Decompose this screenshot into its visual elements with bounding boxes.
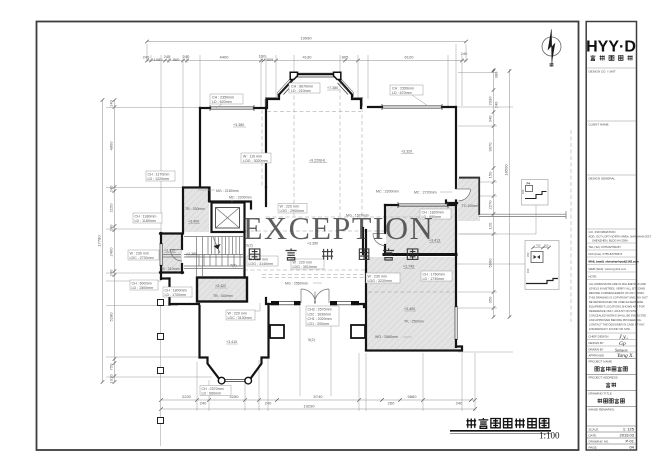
svg-text:6120: 6120 [405,55,415,60]
svg-text:130: 130 [259,54,266,59]
svg-text:CH1 : 2020mm: CH1 : 2020mm [308,317,332,321]
svg-text:04: 04 [630,445,635,450]
svg-text:Gp: Gp [619,341,626,347]
svg-text:W : 220 mm: W : 220 mm [228,311,247,315]
svg-text:TB : 330mm: TB : 330mm [185,207,205,211]
svg-text:TC:100mm: TC:100mm [462,204,480,208]
svg-text:CH : 2370mm: CH : 2370mm [202,387,224,391]
svg-text:1:100: 1:100 [539,431,560,441]
svg-text:150: 150 [488,171,493,178]
svg-text:+3.422: +3.422 [215,284,226,288]
svg-text:W : 230 mm: W : 230 mm [368,274,387,278]
svg-text:DISCREPANCY FOUND ON SITE.: DISCREPANCY FOUND ON SITE. [589,327,631,331]
svg-text:+3.710: +3.710 [164,249,175,253]
svg-text:260: 260 [388,401,395,406]
svg-text:DATE: DATE [589,433,597,437]
svg-text:CH : 1180mm: CH : 1180mm [135,214,157,218]
svg-text:240: 240 [109,99,114,106]
svg-text:700: 700 [536,244,541,248]
svg-text:AND APPROVED BEFORE PROCEEDING: AND APPROVED BEFORE PROCEEDING. [589,318,642,322]
svg-text:4130: 4130 [303,55,313,60]
svg-text:LD : 1500mm: LD : 1500mm [132,286,154,290]
svg-text:+3.380: +3.380 [233,123,244,127]
svg-text:CH2 : 2570mm: CH2 : 2570mm [308,308,332,312]
svg-text:200: 200 [544,244,549,248]
svg-text:BE REPRODUCED OR USED ELSEWHER: BE REPRODUCED OR USED ELSEWHERE. [589,300,644,304]
svg-text:CONTACT THE DESIGNER IN CASE O: CONTACT THE DESIGNER IN CASE OF ANY [589,323,645,327]
svg-text:WEB (Web): www.hyydzs.com: WEB (Web): www.hyydzs.com [589,267,627,271]
svg-text:+3.740: +3.740 [403,265,414,269]
svg-text:Samson: Samson [615,347,627,352]
svg-text:1080: 1080 [154,57,164,62]
svg-text:DESIGN BY: DESIGN BY [589,341,604,345]
svg-text:LOG : 3020mm: LOG : 3020mm [243,159,268,163]
svg-text:DRAWN BY: DRAWN BY [589,347,604,351]
svg-text:160: 160 [521,189,525,194]
svg-text:240: 240 [143,55,150,60]
svg-text:MG : 2560mm: MG : 2560mm [285,282,308,286]
svg-text:EQUIPMENT LOCATIONS SHOWN ARE: EQUIPMENT LOCATIONS SHOWN ARE FOR [589,305,645,309]
svg-text:IMAGE REMARKS:: IMAGE REMARKS: [589,408,615,412]
svg-text:860: 860 [173,57,180,62]
svg-text:TB : 340mm: TB : 340mm [213,294,233,298]
svg-text:+3.410: +3.410 [226,340,237,344]
svg-text:LD : 1730mm: LD : 1730mm [423,277,445,281]
svg-text:LDC : 2730mm: LDC : 2730mm [130,256,154,260]
svg-text:DRAWING TITLE: DRAWING TITLE [589,392,612,396]
svg-text:2150: 2150 [109,203,114,213]
svg-text:CLIENT NAME: CLIENT NAME [589,123,609,127]
svg-text:CH : 600mm: CH : 600mm [132,281,152,285]
svg-text:+3.320: +3.320 [401,150,412,154]
svg-text:340: 340 [488,115,493,122]
svg-text:240: 240 [200,401,207,406]
svg-text:240: 240 [109,224,114,231]
svg-text:DESIGN CO. / UNIT: DESIGN CO. / UNIT [589,70,616,74]
svg-text:APPROVED: APPROVED [589,353,605,357]
svg-text:LD : 660mm: LD : 660mm [202,391,222,395]
svg-text:19090: 19090 [300,36,312,41]
svg-text:REFERENCE ONLY, ADJUST ON SITE: REFERENCE ONLY, ADJUST ON SITE. [589,309,637,313]
svg-text:2019.03: 2019.03 [620,433,635,438]
svg-text:WG : 2560mm: WG : 2560mm [375,335,398,339]
svg-text:CH : 2350mm: CH : 2350mm [392,86,414,90]
svg-text:DRAWING NO.: DRAWING NO. [589,439,610,443]
svg-text:9070: 9070 [488,142,493,152]
svg-text:5860: 5860 [408,394,418,399]
svg-text:W : 220 mm: W : 220 mm [293,260,312,264]
svg-text:MC : 2200mm: MC : 2200mm [376,190,399,194]
svg-text:FAX (Fax): 0755-82750572: FAX (Fax): 0755-82750572 [589,252,623,256]
svg-text:MC : 2200mm: MC : 2200mm [229,196,252,200]
svg-text:LDG : 3010mm: LDG : 3010mm [293,265,317,269]
svg-text:DESIGN GENERAL: DESIGN GENERAL [589,177,616,181]
svg-text:750: 750 [109,363,114,370]
svg-text:SHENZHEN, BLDG A4 205A: SHENZHEN, BLDG A4 205A [592,239,628,243]
svg-text:PROJECT ADDRESS: PROJECT ADDRESS [589,376,618,380]
svg-text:+7.380: +7.380 [327,86,338,90]
svg-text:SCALE: SCALE [589,427,599,431]
svg-text:MAIL (mail): shenzhenhyyd@163.: MAIL (mail): shenzhenhyyd@163.com [589,260,640,264]
svg-text:T(2): T(2) [230,264,237,268]
svg-text:LD2 : 1630mm: LD2 : 1630mm [308,312,332,316]
svg-text:LDC : 3130mm: LDC : 3130mm [228,316,252,320]
svg-text:2030: 2030 [488,96,493,106]
svg-text:CONCEALED WORKS SHALL BE INSPE: CONCEALED WORKS SHALL BE INSPECTED [589,314,646,318]
svg-text:MG : 2180mm: MG : 2180mm [216,189,239,193]
svg-text:17780: 17780 [97,235,102,247]
svg-text:350: 350 [488,296,493,303]
svg-text:CH : 6670mm: CH : 6670mm [291,84,313,88]
svg-text:NOTE:: NOTE: [589,275,598,279]
svg-text:+9.220(H): +9.220(H) [309,159,325,163]
svg-text:1: 125: 1: 125 [623,427,635,432]
svg-text:240: 240 [109,269,114,276]
svg-text:+3.400: +3.400 [188,220,199,224]
svg-text:LD : 1700mm: LD : 1700mm [165,293,187,297]
svg-text:LD : 1180mm: LD : 1180mm [135,219,156,223]
svg-text:LD : 620mm: LD : 620mm [212,100,232,104]
svg-text:LDG : 3230mm: LDG : 3230mm [368,279,392,283]
svg-text:W : 230 mm: W : 230 mm [130,251,149,255]
svg-text:W : 220 mm: W : 220 mm [280,205,299,209]
svg-text:CH : 1800mm: CH : 1800mm [165,288,187,292]
svg-text:18500: 18500 [504,164,509,176]
svg-text:5740: 5740 [314,394,324,399]
svg-text:2270: 2270 [488,200,493,210]
svg-text:S(2): S(2) [308,338,315,342]
svg-text:LD1 : 200mm: LD1 : 200mm [308,322,330,326]
svg-text:805: 805 [267,57,274,62]
svg-text:240: 240 [265,401,272,406]
svg-text:1010: 1010 [109,374,114,384]
svg-text:LOG : 3140mm: LOG : 3140mm [249,262,274,266]
svg-text:380: 380 [494,71,499,78]
svg-text:P-01: P-01 [626,439,635,444]
svg-text:2220: 2220 [182,394,192,399]
svg-text:240: 240 [109,185,114,192]
svg-text:HYY·D: HYY·D [586,39,636,56]
svg-text:Yang X.: Yang X. [617,353,634,359]
svg-text:W : 110 mm: W : 110 mm [243,154,262,158]
svg-text:ALL DIMENSIONS ARE IN MILLIMET: ALL DIMENSIONS ARE IN MILLIMETRES AND [589,282,646,286]
svg-text:TK : 250mm: TK : 250mm [404,320,424,324]
svg-text:CH : 1170mm: CH : 1170mm [148,172,170,176]
svg-text:J.y..: J.y.. [619,335,629,341]
svg-text:PROJECT NAME: PROJECT NAME [589,360,612,364]
svg-text:CH : 1760mm: CH : 1760mm [423,272,445,276]
svg-text:240: 240 [183,54,190,59]
svg-text:EXCEPTION: EXCEPTION [243,210,434,246]
svg-text:P4: P4 [527,182,531,186]
svg-text:THIS DRAWING IS COPYRIGHT AND: THIS DRAWING IS COPYRIGHT AND MAY NOT [589,296,648,300]
svg-text:TB : 310mm: TB : 310mm [160,267,180,271]
svg-text:LEVELS IN METRES. VERIFY ALL S: LEVELS IN METRES. VERIFY ALL SITE DIMS [589,287,645,291]
svg-text:19290: 19290 [303,404,315,409]
svg-text:350: 350 [526,252,530,257]
svg-text:4800: 4800 [109,141,114,151]
svg-text:BEFORE COMMENCEMENT OF ANY WOR: BEFORE COMMENCEMENT OF ANY WORK. [589,291,645,295]
svg-text:CH : 2350mm: CH : 2350mm [212,95,234,99]
svg-text:MC : 2720mm: MC : 2720mm [414,191,437,195]
svg-text:2460: 2460 [109,247,114,257]
svg-text:+2.380: +2.380 [186,252,197,256]
svg-text:805: 805 [342,55,349,60]
svg-text:4400: 4400 [220,55,230,60]
svg-text:240: 240 [164,54,171,59]
svg-text:LD : 670mm: LD : 670mm [392,91,412,95]
svg-text:100: 100 [526,268,530,273]
svg-text:CHIEF DESIGN: CHIEF DESIGN [589,335,609,339]
svg-text:5880: 5880 [488,258,493,268]
svg-text:TEL (Tel): 0755-82750267: TEL (Tel): 0755-82750267 [589,245,622,249]
svg-text:PAGE: PAGE [589,445,597,449]
svg-text:5280: 5280 [109,312,114,322]
svg-text:LD : 1220mm: LD : 1220mm [148,177,170,181]
svg-text:CO. INFORMATION: CO. INFORMATION [589,230,616,234]
svg-text:120: 120 [488,222,493,229]
svg-text:LD : 210mm: LD : 210mm [291,89,311,93]
svg-text:+3.400: +3.400 [404,307,415,311]
